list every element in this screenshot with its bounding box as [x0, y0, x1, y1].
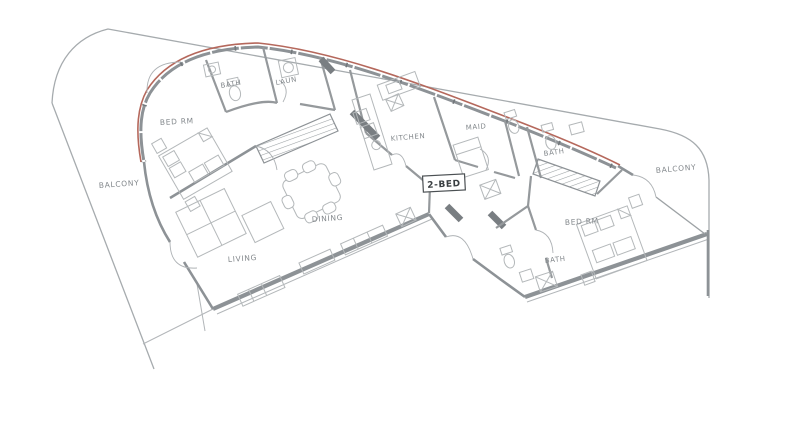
- label-balcony-left: BALCONY: [99, 178, 140, 190]
- unit-type-tag: 2-BED: [423, 174, 466, 192]
- shaft-icon: [480, 179, 501, 199]
- label-bath-lower-right: BATH: [544, 255, 566, 265]
- wardrobe-left-icon: [256, 114, 338, 163]
- label-kitchen: KITCHEN: [390, 132, 425, 143]
- unit-type-label: 2-BED: [427, 179, 461, 191]
- label-balcony-right: BALCONY: [655, 162, 696, 175]
- maid-bed-icon: [453, 137, 488, 177]
- wardrobe-right-icon: [533, 159, 600, 196]
- label-bath-upper-right: BATH: [543, 147, 565, 158]
- label-dining: DINING: [312, 213, 344, 224]
- sofa-icon: [176, 173, 284, 268]
- bed-right-icon: [562, 194, 662, 285]
- label-maid: MAID: [465, 122, 486, 132]
- label-living: LIVING: [228, 253, 258, 264]
- floor-plan-page: BALCONY BED RM BATH LAUN KITCHEN MAID DI…: [0, 0, 789, 443]
- label-bed-rm-left: BED RM: [160, 116, 194, 127]
- floor-plan-drawing: BALCONY BED RM BATH LAUN KITCHEN MAID DI…: [0, 0, 789, 443]
- label-bed-rm-right: BED RM: [565, 216, 599, 227]
- label-laundry: LAUN: [275, 75, 298, 87]
